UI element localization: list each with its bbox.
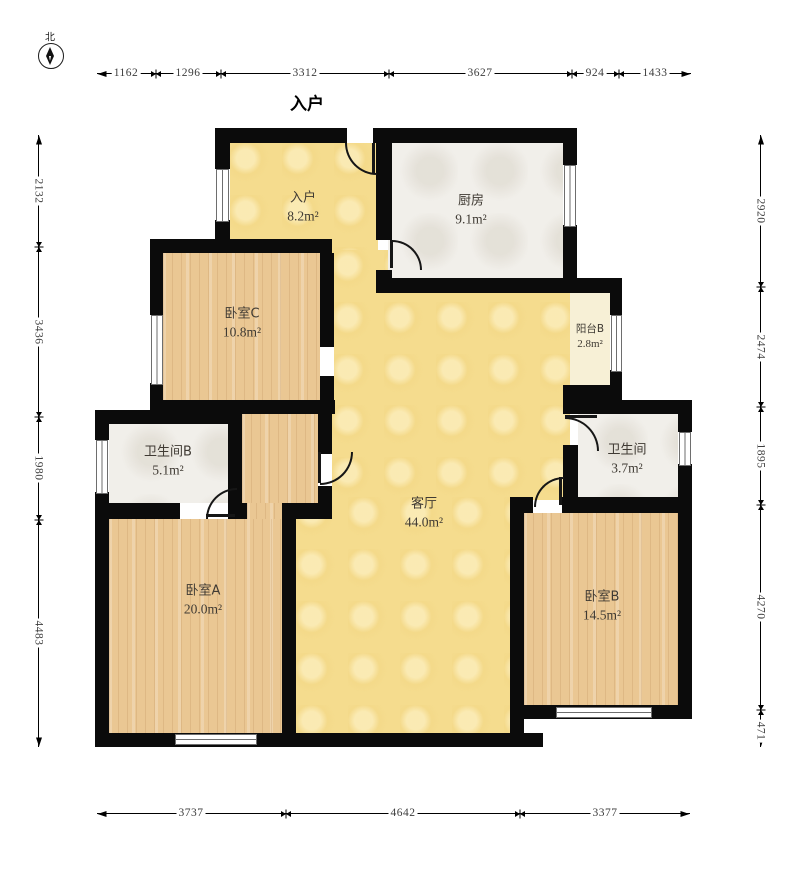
wall-segment <box>215 128 347 143</box>
room-living-lower <box>296 497 510 733</box>
dimension-value: 3436 <box>33 318 45 347</box>
room-label-bathroom-b: 卫生间B 5.1m² <box>144 443 192 480</box>
dimension-value: 1980 <box>33 454 45 483</box>
wall-segment <box>318 486 332 519</box>
arrow-icon <box>98 71 107 77</box>
wall-segment <box>562 497 692 513</box>
wall-segment <box>563 400 692 414</box>
dimension-value: 2474 <box>755 333 767 362</box>
window <box>96 440 108 494</box>
window <box>151 315 163 385</box>
room-area: 3.7m² <box>607 460 646 479</box>
wall-segment <box>563 128 577 165</box>
dimension-tick <box>756 407 765 408</box>
window <box>564 165 576 227</box>
dimension-tick <box>221 69 222 78</box>
room-area: 44.0m² <box>405 514 443 533</box>
dimension-tick <box>756 710 765 711</box>
wall-segment <box>150 253 163 315</box>
room-name: 入户 <box>287 189 318 207</box>
dimension-value: 1433 <box>641 67 670 79</box>
wall-segment <box>95 492 109 747</box>
dimension-value: 3627 <box>466 67 495 79</box>
wall-segment <box>282 519 296 733</box>
arrow-icon <box>36 738 42 747</box>
room-name: 卧室A <box>184 582 222 600</box>
corridor <box>242 414 318 515</box>
entrance-caption: 入户 <box>290 90 324 115</box>
dimension-value: 3312 <box>291 67 320 79</box>
dimension-tick <box>520 809 521 818</box>
dimension-tick <box>34 520 43 521</box>
dimension-tick <box>756 287 765 288</box>
arrow-icon <box>98 811 107 817</box>
arrow-icon <box>36 136 42 145</box>
wall-segment <box>610 293 622 315</box>
door-leaf-bathroom-b <box>206 514 235 517</box>
dimension-value: 924 <box>584 67 607 79</box>
door-leaf-bedroom-b <box>559 477 562 505</box>
wall-opening <box>320 347 334 376</box>
dimension-value: 2132 <box>33 177 45 206</box>
wall-segment <box>678 414 692 432</box>
wall-segment <box>150 239 332 253</box>
wall-segment <box>95 503 180 519</box>
wall-segment <box>563 225 577 293</box>
corridor-passage <box>247 503 282 519</box>
dimension-tick <box>756 505 765 506</box>
dimension-value: 2920 <box>755 197 767 226</box>
room-label-bathroom: 卫生间 3.7m² <box>607 441 646 478</box>
window <box>175 734 257 745</box>
room-area: 14.5m² <box>583 607 621 626</box>
room-label-balcony-b: 阳台B 2.8m² <box>576 322 604 352</box>
dimension-value: 3377 <box>591 807 620 819</box>
wall-segment <box>215 143 230 169</box>
window <box>679 432 691 466</box>
wall-segment <box>95 424 109 440</box>
window <box>556 707 652 718</box>
dimension-value: 4483 <box>33 619 45 648</box>
door-leaf-corridor <box>318 452 321 483</box>
room-area: 9.1m² <box>455 211 486 230</box>
room-label-bedroom-b: 卧室B 14.5m² <box>583 588 621 625</box>
dimension-value: 3737 <box>177 807 206 819</box>
room-name: 卫生间B <box>144 443 192 461</box>
dimension-tick <box>572 69 573 78</box>
dimension-value: 1296 <box>174 67 203 79</box>
dimension-value: 4642 <box>389 807 418 819</box>
room-label-bedroom-c: 卧室C 10.8m² <box>223 305 261 342</box>
wall-segment <box>376 278 622 293</box>
wall-segment <box>376 143 392 240</box>
door-leaf-entry <box>372 143 375 173</box>
room-area: 20.0m² <box>184 601 222 620</box>
dimension-tick <box>619 69 620 78</box>
room-name: 卧室C <box>223 305 261 323</box>
dimension-tick <box>389 69 390 78</box>
wall-segment <box>373 128 577 143</box>
room-name: 厨房 <box>455 192 486 210</box>
room-name: 卫生间 <box>607 441 646 459</box>
arrow-icon <box>682 71 691 77</box>
arrow-icon <box>758 136 764 145</box>
dimension-tick <box>156 69 157 78</box>
dimension-line-left <box>38 135 39 747</box>
wall-segment <box>563 445 578 497</box>
room-bedroom-a <box>109 519 282 733</box>
room-label-kitchen: 厨房 9.1m² <box>455 192 486 229</box>
arrow-icon <box>681 811 690 817</box>
room-area: 10.8m² <box>223 324 261 343</box>
wall-segment <box>318 400 332 454</box>
dimension-value: 4270 <box>755 593 767 622</box>
dimension-tick <box>34 247 43 248</box>
window <box>611 315 622 372</box>
room-living-mid <box>332 405 570 500</box>
dimension-value: 1162 <box>112 67 141 79</box>
dimension-value: 1895 <box>755 442 767 471</box>
door-leaf-bathroom <box>565 415 597 418</box>
room-area: 2.8m² <box>576 337 604 352</box>
dimension-tick <box>34 417 43 418</box>
room-name: 客厅 <box>405 495 443 513</box>
dimension-value: 471 <box>755 720 767 743</box>
wall-segment <box>563 385 622 400</box>
room-name: 阳台B <box>576 322 604 337</box>
window <box>216 169 229 222</box>
floor-plan-canvas: 北 1162 1296 3312 3627 924 1433 入户 2132 3… <box>0 0 787 880</box>
room-name: 卧室B <box>583 588 621 606</box>
wall-segment <box>95 410 242 424</box>
door-leaf-kitchen <box>390 240 393 268</box>
wall-segment <box>320 253 334 400</box>
room-label-bedroom-a: 卧室A 20.0m² <box>184 582 222 619</box>
room-area: 8.2m² <box>287 208 318 227</box>
room-label-living: 客厅 44.0m² <box>405 495 443 532</box>
room-label-entry: 入户 8.2m² <box>287 189 318 226</box>
compass-needle-south-hollow <box>49 56 51 61</box>
compass-needle-north <box>46 47 54 56</box>
dimension-tick <box>286 809 287 818</box>
room-area: 5.1m² <box>144 462 192 481</box>
compass-north-label: 北 <box>45 29 55 44</box>
wall-segment <box>678 504 692 719</box>
wall-segment <box>95 733 543 747</box>
